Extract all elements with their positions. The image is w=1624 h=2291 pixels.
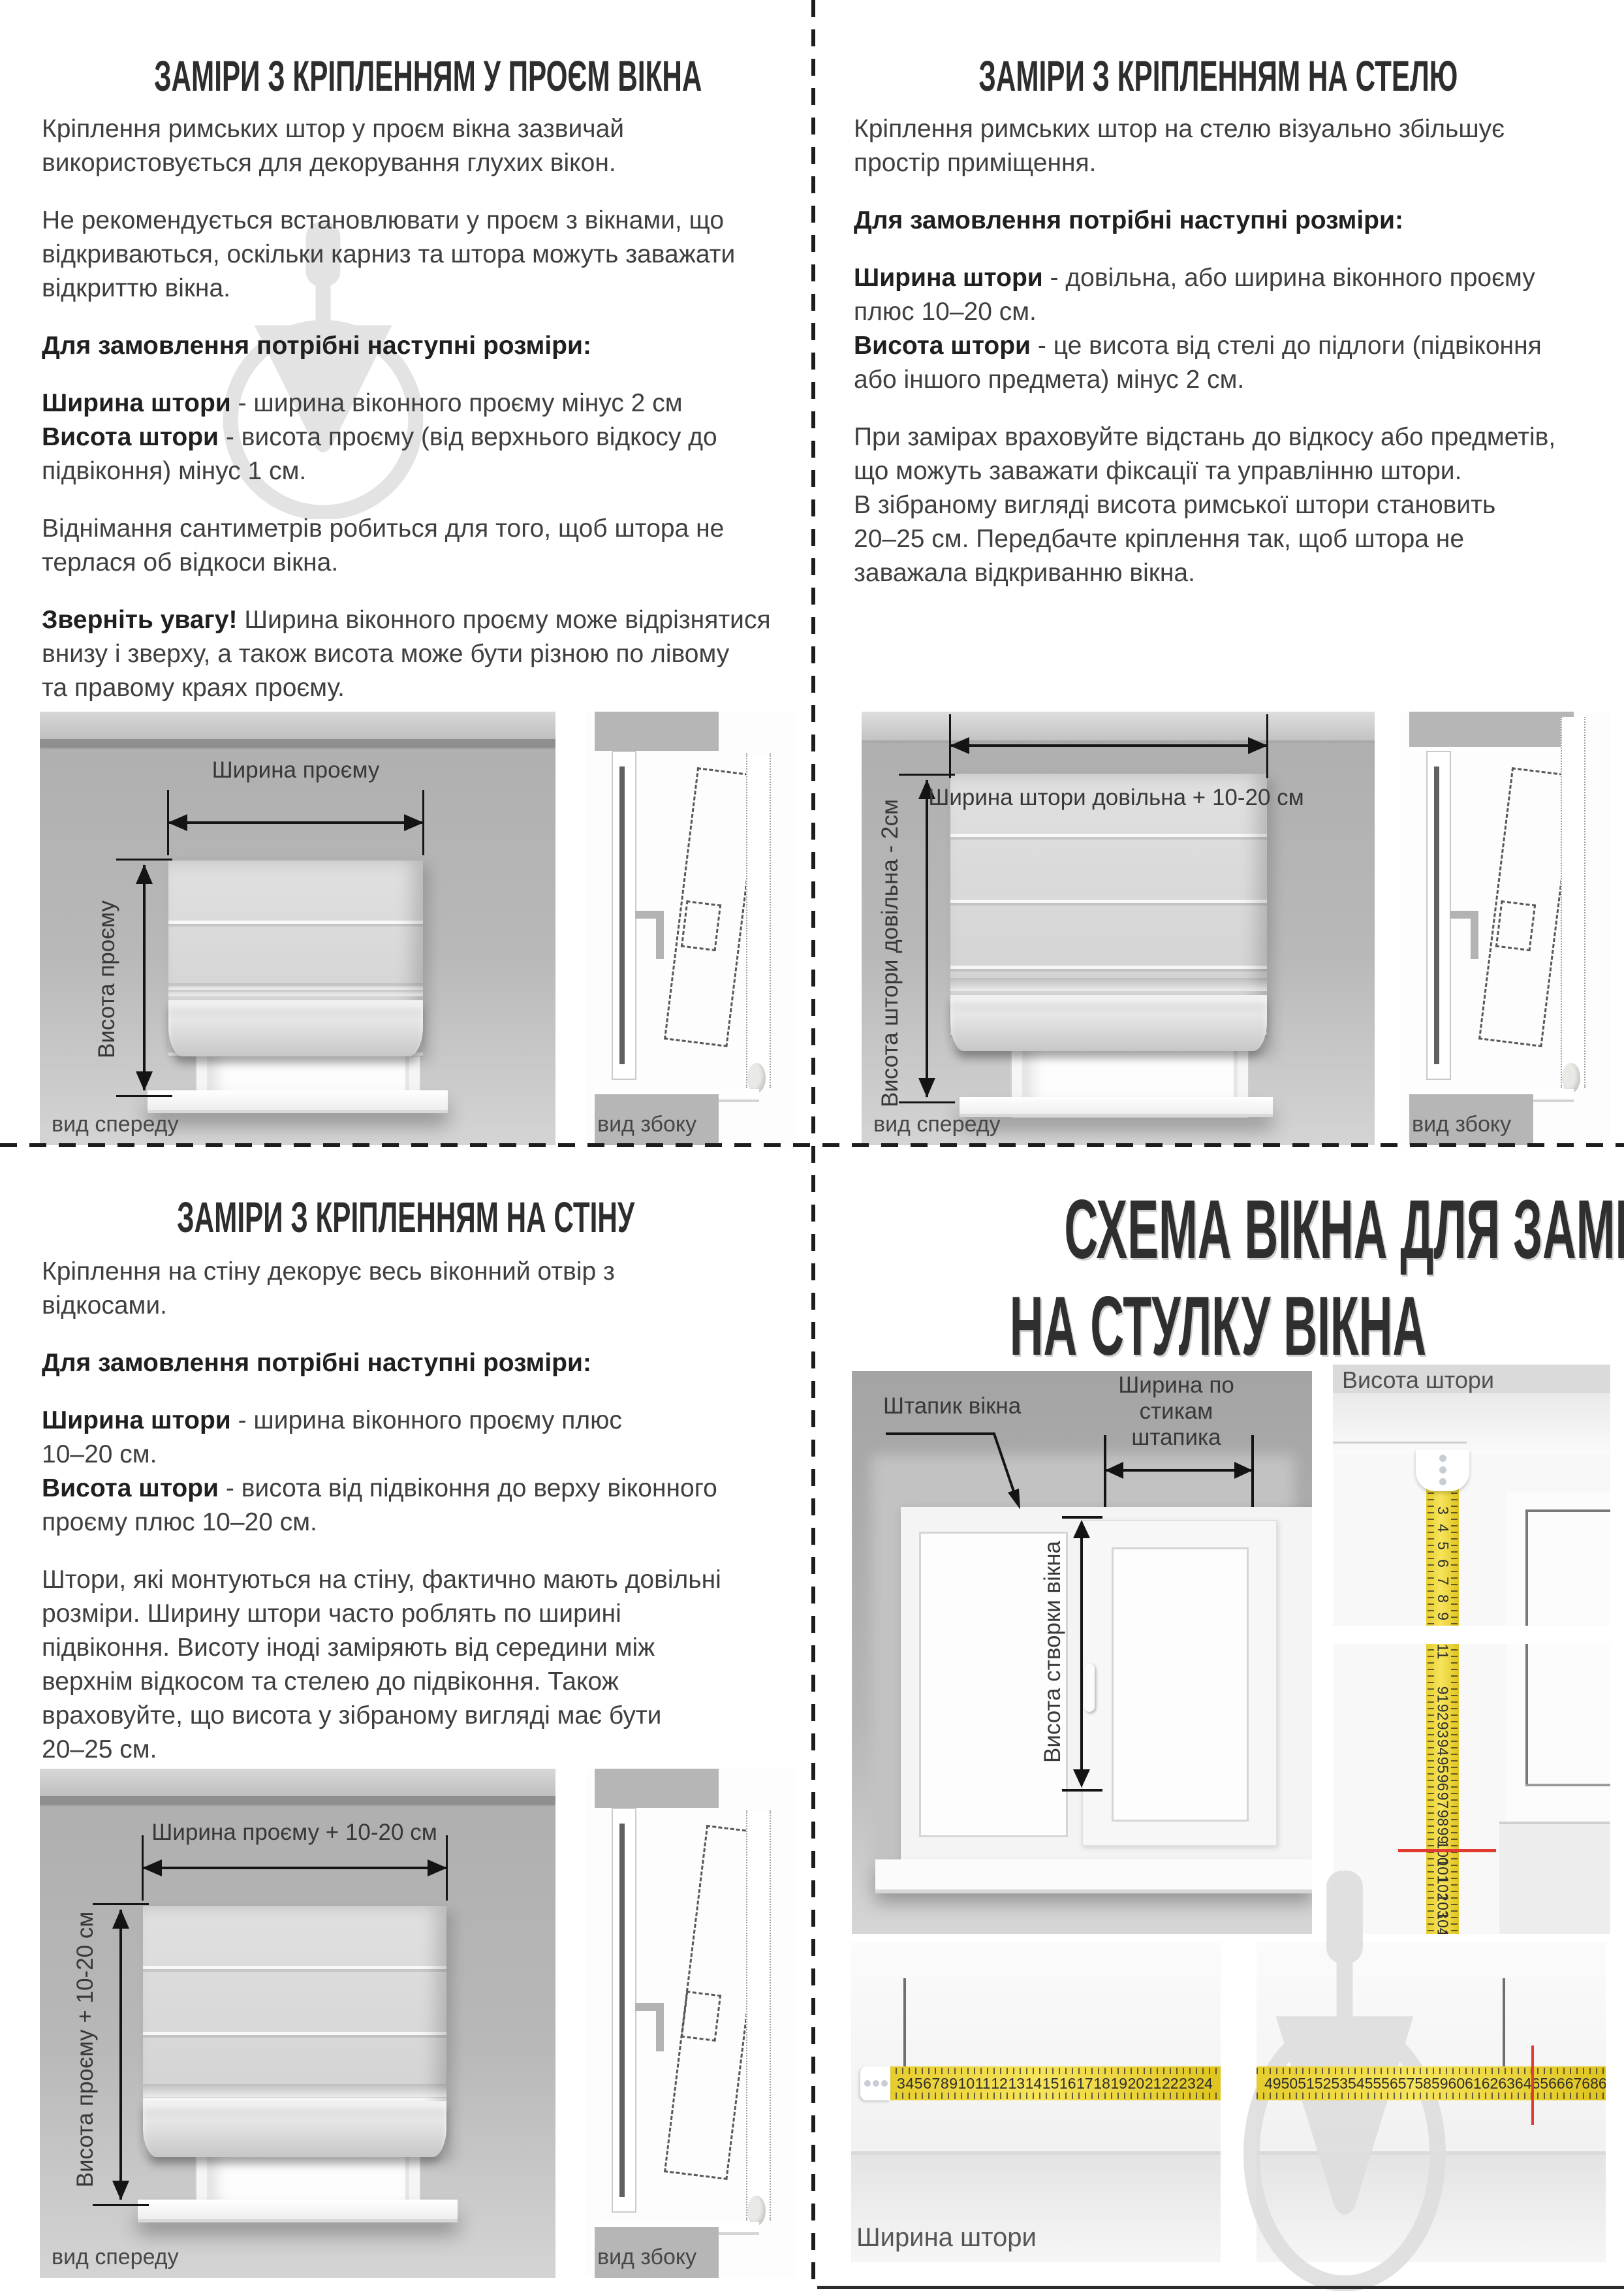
bead-width-label: Ширина по стикам штапика: [1082, 1372, 1271, 1451]
front-view-label: вид спереду: [873, 1112, 1001, 1137]
width-dimension-label: Ширина проєму + 10-20 см: [151, 1820, 437, 1846]
paragraph: Кріплення римських штор у проєм вікна за…: [42, 112, 778, 180]
sash-schematic-photo: Штапик вікна Ширина по стикам штапика Ви…: [852, 1371, 1312, 1934]
paragraph: Не рекомендується встановлювати у проєм …: [42, 204, 778, 306]
roman-shade: [168, 861, 423, 1056]
paragraph: Штори, які монтуються на стіну, фактично…: [42, 1563, 778, 1767]
height-definition: Висота штори - це висота від стелі до пі…: [854, 329, 1590, 397]
scheme-title-line1: СХЕМА ВІКНА ДЛЯ ЗАМІРІВ: [1064, 1182, 1624, 1278]
shade-fold: [168, 1000, 423, 1056]
width-definition: Ширина штори - довільна, або ширина віко…: [854, 261, 1590, 329]
section-text: Кріплення римських штор у проєм вікна за…: [42, 112, 778, 729]
side-view-photo: вид збоку: [586, 1769, 795, 2278]
section-title-text: ЗАМІРИ З КРІПЛЕННЯМ У ПРОЄМ ВІКНА: [154, 51, 702, 101]
width-definition: Ширина штори - ширина віконного проєму п…: [42, 1404, 778, 1472]
ceiling-section: [1409, 712, 1574, 747]
section-wall-mount: ЗАМІРИ З КРІПЛЕННЯМ НА СТІНУ Кріплення н…: [0, 1145, 812, 2291]
height-arrow: [143, 865, 146, 1090]
shade-profile: [746, 1810, 771, 2220]
order-heading: Для замовлення потрібні наступні розміри…: [854, 204, 1590, 238]
tape-numbers: 9192939495969798991001011021031041051061…: [1426, 1686, 1459, 1926]
section-text: Кріплення на стіну декорує весь віконний…: [42, 1255, 778, 1790]
section-title-text: ЗАМІРИ З КРІПЛЕННЯМ НА СТЕЛЮ: [978, 51, 1458, 101]
size-definitions: Ширина штори - довільна, або ширина віко…: [854, 261, 1590, 397]
side-view-label: вид збоку: [1412, 1112, 1511, 1137]
height-dimension-label: Висота штори довільна - 2см: [877, 799, 903, 1107]
side-view-photo: вид збоку: [1400, 712, 1610, 1145]
height-definition: Висота штори - висота від підвіконня до …: [42, 1472, 778, 1540]
curtain-height-photo: Висота штори 34567891011 919293949596979…: [1333, 1365, 1610, 1934]
window-bottom-right-corner: [1257, 1942, 1606, 2262]
window-sill: [138, 2200, 458, 2219]
curtain-width-photo: 3456789101112131415161718192021222324 49…: [851, 1942, 1606, 2262]
section-title: ЗАМІРИ З КРІПЛЕННЯМ НА СТЕЛЮ: [812, 51, 1624, 101]
width-arrow: [168, 821, 423, 824]
frame-edge-top: [1525, 1509, 1610, 1512]
width-dimension-label: Ширина штори довільна + 10-20 см: [928, 785, 1304, 811]
width-dimension-label: Ширина проєму: [212, 757, 380, 783]
scheme-title-line2: НА СТУЛКУ ВІКНА: [1010, 1278, 1426, 1375]
sill-area: [1257, 2155, 1606, 2262]
tape-numbers: 4950515253545556575859606162636465666768…: [1264, 2075, 1594, 2092]
height-dimension-label: Висота проєму + 10-20 см: [72, 1912, 99, 2188]
bead-width-arrowhead-right: [1234, 1462, 1253, 1479]
bead-label: Штапик вікна: [883, 1393, 1021, 1419]
section-title: ЗАМІРИ З КРІПЛЕННЯМ У ПРОЄМ ВІКНА: [0, 51, 812, 101]
order-heading: Для замовлення потрібні наступні розміри…: [42, 329, 778, 363]
section-sash-scheme: СХЕМА ВІКНА ДЛЯ ЗАМІРІВ НА СТУЛКУ ВІКНА: [812, 1145, 1624, 2291]
width-def: - ширина віконного проєму мінус 2 см: [231, 389, 683, 417]
paragraph: Кріплення римських штор на стелю візуаль…: [854, 112, 1590, 180]
measurement-guide-page: ЗАМІРИ З КРІПЛЕННЯМ У ПРОЄМ ВІКНА Кріпле…: [0, 0, 1624, 2291]
glass-line: [619, 766, 625, 1064]
side-view-photo: вид збоку: [586, 712, 795, 1145]
window-sill: [148, 1090, 448, 1110]
shade-profile: [746, 753, 771, 1088]
horizontal-cut-line: [0, 1143, 1624, 1147]
bracket-arm: [656, 2003, 664, 2051]
paragraph: Віднімання сантиметрів робиться для того…: [42, 512, 778, 580]
paragraph: Кріплення на стіну декорує весь віконний…: [42, 1255, 778, 1323]
glass-line: [1434, 766, 1439, 1064]
tape-hook: [860, 2066, 890, 2100]
height-arrow: [926, 780, 928, 1097]
red-measure-mark: [1531, 2046, 1534, 2125]
roman-shade: [143, 1906, 446, 2157]
ceiling: [862, 712, 1375, 740]
order-heading: Для замовлення потрібні наступні розміри…: [42, 1346, 778, 1380]
sash-height-label: Висота створки вікна: [1040, 1541, 1066, 1763]
height-term: Висота штори: [42, 1474, 219, 1502]
note-term: Зверніть увагу!: [42, 606, 237, 634]
front-view-photo: Ширина штори довільна + 10-20 см Висота …: [862, 712, 1375, 1145]
bracket-arm: [1471, 911, 1478, 959]
size-definitions: Ширина штори - ширина віконного проєму м…: [42, 387, 778, 488]
front-view-photo: Ширина проєму + 10-20 см Висота проєму +…: [40, 1769, 555, 2278]
sash-handle-outline: [681, 1991, 721, 2042]
ceiling: [1333, 1393, 1610, 1453]
front-view-photo: Ширина проєму Висота проєму вид спереду: [40, 712, 555, 1145]
shade-fold: [950, 995, 1267, 1051]
bead-pointer-arrowhead: [1008, 1489, 1020, 1509]
shade-fold: [143, 2101, 446, 2157]
width-term: Ширина штори: [854, 264, 1043, 292]
front-view-label: вид спереду: [52, 1112, 179, 1137]
red-measure-mark: [1398, 1849, 1496, 1852]
bead-width-arrowhead-left: [1105, 1462, 1123, 1479]
tape-numbers: 3456789101112131415161718192021222324: [897, 2075, 1213, 2092]
height-term: Висота штори: [42, 423, 219, 451]
height-arrow: [119, 1910, 122, 2200]
width-definition: Ширина штори - ширина віконного проєму м…: [42, 387, 778, 420]
roman-shade: [950, 774, 1267, 1051]
tape-hook: [1416, 1449, 1469, 1491]
sash-height-arrowhead-bottom: [1073, 1769, 1090, 1788]
section-opening-mount: ЗАМІРИ З КРІПЛЕННЯМ У ПРОЄМ ВІКНА Кріпле…: [0, 0, 812, 1145]
curtain-width-label: Ширина штори: [856, 2223, 1037, 2252]
note-paragraph: Зверніть увагу! Ширина віконного проєму …: [42, 603, 778, 705]
photo-seam: [1333, 1626, 1610, 1644]
width-term: Ширина штори: [42, 389, 231, 417]
wall-under-window: [1499, 1824, 1610, 1934]
schematic-arrows: [852, 1371, 1312, 1934]
bottom-cut-line: [817, 2286, 1624, 2289]
glass-line: [619, 1824, 625, 2197]
section-ceiling-mount: ЗАМІРИ З КРІПЛЕННЯМ НА СТЕЛЮ Кріплення р…: [812, 0, 1624, 1145]
side-view-label: вид збоку: [597, 2245, 696, 2270]
section-text: Кріплення римських штор на стелю візуаль…: [854, 112, 1590, 614]
shade-profile: [1561, 717, 1585, 1088]
height-term: Висота штори: [854, 332, 1031, 360]
frame-edge-vertical: [1525, 1509, 1528, 1784]
frame-edge-bottom: [1525, 1784, 1610, 1786]
curtain-height-label: Висота штори: [1342, 1367, 1494, 1394]
tape-numbers: 34567891011: [1426, 1502, 1459, 1626]
height-definition: Висота штори - висота проєму (від верхнь…: [42, 420, 778, 488]
side-view-label: вид збоку: [597, 1112, 696, 1137]
paragraph: При замірах враховуйте відстань до відко…: [854, 420, 1590, 590]
width-term: Ширина штори: [42, 1406, 231, 1434]
front-view-label: вид спереду: [52, 2245, 179, 2270]
sash-handle-outline: [681, 900, 721, 951]
bracket-arm: [656, 911, 664, 959]
width-arrow: [950, 744, 1267, 747]
scheme-title: СХЕМА ВІКНА ДЛЯ ЗАМІРІВ НА СТУЛКУ ВІКНА: [812, 1182, 1624, 1375]
width-arrow: [143, 1867, 446, 1869]
sash-height-arrowhead-top: [1073, 1520, 1090, 1538]
bead-pointer-line: [886, 1434, 1015, 1495]
height-dimension-label: Висота проєму: [94, 900, 120, 1058]
window-bottom-left-corner: [851, 1942, 1221, 2262]
window-corner: [1506, 1493, 1610, 1849]
section-title-text: ЗАМІРИ З КРІПЛЕННЯМ НА СТІНУ: [177, 1192, 634, 1242]
section-title: ЗАМІРИ З КРІПЛЕННЯМ НА СТІНУ: [0, 1192, 812, 1242]
window-sill: [960, 1097, 1273, 1114]
ceiling-edge: [1333, 1442, 1467, 1444]
sash-handle-outline: [1495, 900, 1536, 951]
size-definitions: Ширина штори - ширина віконного проєму п…: [42, 1404, 778, 1540]
